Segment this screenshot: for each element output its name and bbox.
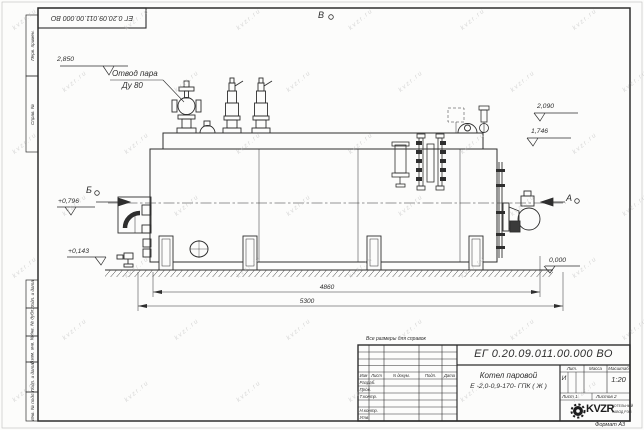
kvzr-logo: KVZR: [586, 403, 614, 415]
margin-perv-primen: Перв. примен.: [26, 15, 38, 76]
row-prov: Пров.: [360, 387, 372, 392]
dim-5300: 5300: [293, 298, 321, 305]
steam-outlet-valve: [172, 81, 201, 133]
burner: [117, 197, 151, 267]
elevation-1746: 1,746: [531, 128, 548, 135]
masshtab-header: Масштаб: [607, 366, 630, 371]
dome-fitting: [200, 121, 215, 133]
safety-valve-1: [223, 78, 243, 133]
elevation-0796: +0,796: [58, 198, 79, 205]
boiler-drawing: [0, 0, 644, 430]
col-ndokum: N докум.: [384, 373, 419, 378]
row-utv: Утв.: [360, 415, 370, 420]
product-type: Е -2,0-0,9-170- ГПК ( Ж ): [458, 383, 559, 390]
view-label-top: В: [318, 10, 324, 20]
boiler-body: [108, 133, 566, 262]
row-tkontr: Т.контр.: [360, 394, 378, 399]
reference-note: Все размеры для справок: [366, 336, 426, 342]
view-label-right: А: [566, 193, 572, 203]
elevation-0143: +0,143: [68, 248, 89, 255]
lit-value: И: [560, 375, 568, 382]
col-izm: Изм: [358, 373, 369, 378]
scale-value: 1:20: [607, 375, 630, 384]
col-data: Дата: [442, 373, 457, 378]
sheet-number: Лист 1: [562, 394, 578, 399]
doc-number: ЕГ 0.20.09.011.00.000 ВО: [459, 348, 628, 360]
ground-line: [105, 270, 553, 277]
margin-inv-podl: Инв. № подл.: [26, 392, 38, 421]
drawing-sheet: ЕГ 0.20.09.011.00.000 ВО 2,850 Отвод пар…: [0, 0, 644, 430]
gear-icon: [572, 405, 585, 418]
margin-inv-dubl: Инв. № дубл.: [26, 308, 38, 336]
view-markers: [95, 15, 580, 206]
elevation-2090: 2,090: [537, 103, 554, 110]
steam-drum-casing: [163, 133, 483, 149]
steam-outlet-label-2: Ду 80: [122, 81, 143, 90]
lit-header: Лит.: [560, 366, 584, 371]
elevation-0000: 0,000: [549, 257, 566, 264]
col-list: Лист: [369, 373, 384, 378]
margin-podp-data-1: Подп. и дата: [26, 280, 38, 308]
col-podp: Подп.: [419, 373, 442, 378]
product-name: Котел паровой: [458, 371, 559, 380]
view-label-left: Б: [86, 185, 92, 195]
margin-podp-data-2: Подп. и дата: [26, 362, 38, 392]
safety-valve-2: [252, 78, 272, 133]
margin-vzam-inv: Взам. инв. №: [26, 336, 38, 362]
margin-sprav-no: Справ. №: [26, 76, 38, 152]
dim-4860: 4860: [313, 284, 341, 291]
company-line-1: КОТЕЛЬНЫЙ: [612, 404, 633, 408]
row-razrab: Разраб.: [360, 380, 376, 385]
format-label: Формат А3: [595, 422, 625, 428]
manometer-siphon: [448, 106, 489, 133]
massa-header: Масса: [584, 366, 607, 371]
row-nkontr: Н.контр.: [360, 408, 379, 413]
motorized-damper: [503, 191, 540, 232]
elevation-2850: 2,850: [57, 56, 74, 63]
dimension-lines: [138, 256, 563, 311]
lifting-lug: [458, 124, 477, 134]
support-feet: [159, 236, 483, 270]
steam-outlet-label-1: Отвод пара: [112, 69, 158, 78]
level-gauge-column: [416, 134, 446, 190]
corner-stamp-code: ЕГ 0.20.09.011.00.000 ВО: [40, 9, 144, 26]
sheets-total: Листов 2: [596, 394, 617, 399]
company-line-2: ЗАВОД РЭП: [612, 410, 631, 414]
